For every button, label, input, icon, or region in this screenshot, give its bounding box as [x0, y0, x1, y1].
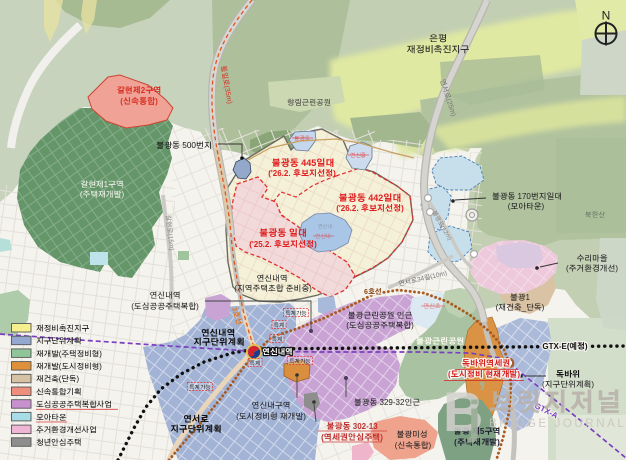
svg-text:불광동 445일대: 불광동 445일대 [272, 157, 335, 168]
svg-text:(지역주택조합 준비중): (지역주택조합 준비중) [234, 284, 312, 293]
svg-text:('26.2. 후보지선정): ('26.2. 후보지선정) [268, 169, 336, 178]
svg-text:수리마을: 수리마을 [576, 254, 607, 263]
svg-text:불광근린공원 인근: 불광근린공원 인근 [348, 311, 413, 320]
svg-text:연신내구역: 연신내구역 [252, 401, 291, 410]
svg-text:재개발(주택정비형): 재개발(주택정비형) [36, 349, 102, 358]
svg-text:재건축(단독): 재건축(단독) [36, 375, 80, 384]
svg-text:연신내역: 연신내역 [256, 274, 287, 283]
svg-text:연서로: 연서로 [183, 414, 209, 424]
svg-text:도심공공주택복합사업: 도심공공주택복합사업 [36, 400, 112, 409]
svg-text:향림근린공원: 향림근린공원 [287, 98, 331, 107]
svg-text:(주택재개발): (주택재개발) [80, 190, 125, 199]
svg-text:(재건축_단독): (재건축_단독) [496, 303, 545, 312]
svg-text:재개발(도시정비형): 재개발(도시정비형) [36, 362, 102, 371]
svg-text:GTX-E(예정): GTX-E(예정) [542, 341, 588, 351]
svg-text:특계가능: 특계가능 [285, 310, 306, 317]
svg-text:불광근린공원: 불광근린공원 [416, 336, 464, 346]
svg-text:지구단위계획: 지구단위계획 [36, 337, 82, 346]
svg-text:('25.2. 후보지선정): ('25.2. 후보지선정) [249, 240, 317, 249]
svg-text:(모아타운): (모아타운) [508, 202, 545, 211]
svg-text:북한산: 북한산 [585, 211, 606, 219]
svg-text:모아타운: 모아타운 [36, 413, 66, 422]
svg-text:갈현제2구역: 갈현제2구역 [117, 86, 162, 95]
svg-text:은평: 은평 [429, 34, 447, 44]
svg-text:불광동 500번지: 불광동 500번지 [156, 141, 212, 150]
svg-text:연신중: 연신중 [350, 152, 366, 159]
svg-text:독바위역세권: 독바위역세권 [462, 359, 510, 368]
svg-text:(도시정비 현재개발): (도시정비 현재개발) [448, 370, 520, 379]
svg-text:(도시정비형 재개발): (도시정비형 재개발) [236, 412, 306, 421]
svg-text:불광동 일대: 불광동 일대 [259, 227, 307, 238]
svg-text:(도심공공주택복합): (도심공공주택복합) [131, 302, 199, 311]
svg-text:연신내역: 연신내역 [201, 328, 235, 338]
svg-text:연신내역: 연신내역 [262, 348, 293, 357]
svg-text:독바위: 독바위 [556, 370, 580, 379]
svg-text:특계: 특계 [274, 322, 285, 329]
svg-text:(도심공공주택복합): (도심공공주택복합) [346, 321, 414, 330]
svg-text:특계: 특계 [250, 360, 261, 367]
svg-text:연신내: 연신내 [318, 223, 333, 230]
svg-text:(신속통합): (신속통합) [120, 96, 158, 106]
svg-text:불광동 329-32인근: 불광동 329-32인근 [354, 398, 420, 407]
svg-text:('26.2. 후보지선정): ('26.2. 후보지선정) [336, 204, 404, 213]
svg-text:6호선: 6호선 [364, 288, 382, 296]
svg-text:불광동 442일대: 불광동 442일대 [339, 192, 402, 203]
svg-text:불광동 302-13: 불광동 302-13 [326, 421, 378, 431]
svg-text:특계가능: 특계가능 [189, 384, 210, 391]
svg-text:연신내역: 연신내역 [149, 291, 180, 300]
svg-text:(주거환경개선): (주거환경개선) [566, 264, 618, 273]
svg-text:(지구단위계획): (지구단위계획) [542, 380, 594, 389]
svg-text:갈현제1구역: 갈현제1구역 [80, 180, 123, 189]
svg-text:(신속통합): (신속통합) [395, 441, 432, 450]
svg-text:특계가능: 특계가능 [289, 358, 310, 365]
svg-text:지구단위계획: 지구단위계획 [170, 424, 221, 434]
svg-text:N: N [602, 11, 611, 23]
svg-text:재정비촉진지구: 재정비촉진지구 [36, 324, 89, 333]
svg-text:불광동 170번지일대: 불광동 170번지일대 [492, 192, 562, 201]
svg-text:불광미성: 불광미성 [396, 430, 427, 439]
svg-text:청년안심주택: 청년안심주택 [36, 438, 82, 447]
svg-text:불광초: 불광초 [294, 135, 310, 142]
svg-text:BRIDGE JOURNAL: BRIDGE JOURNAL [489, 419, 626, 430]
svg-text:신속통합기획: 신속통합기획 [36, 387, 82, 396]
svg-text:주거환경개선사업: 주거환경개선사업 [36, 426, 97, 435]
svg-text:지구단위계획: 지구단위계획 [193, 337, 244, 347]
svg-text:’: ’ [478, 379, 486, 409]
svg-text:특계: 특계 [272, 336, 283, 343]
svg-text:브릿지저널: 브릿지저널 [489, 389, 622, 417]
svg-text:(역세권안심주택): (역세권안심주택) [321, 433, 383, 442]
svg-text:재정비촉진지구: 재정비촉진지구 [407, 45, 470, 55]
svg-text:연신내: 연신내 [315, 233, 331, 240]
svg-text:불광1: 불광1 [510, 293, 531, 302]
